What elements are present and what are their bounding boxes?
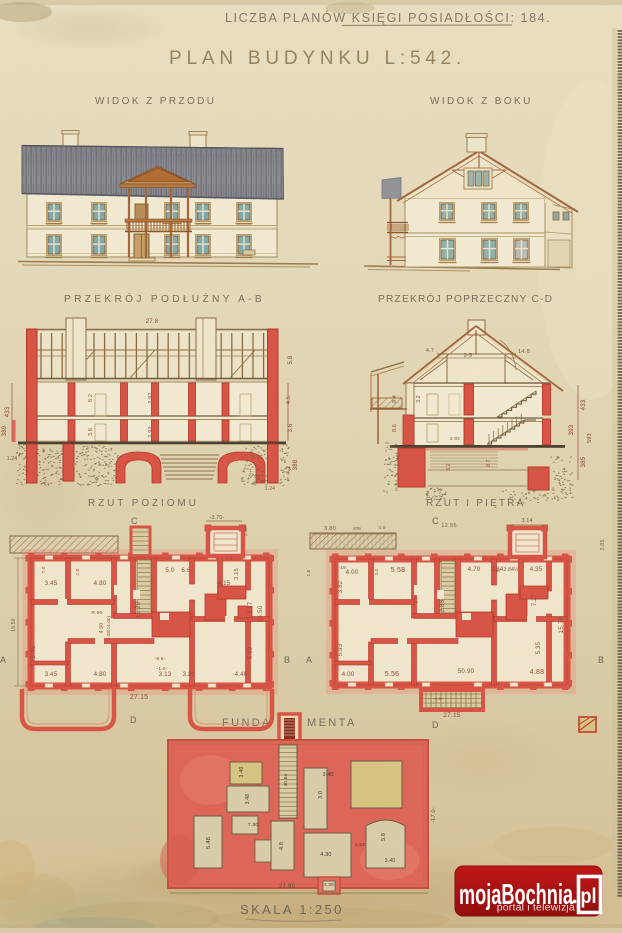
svg-text:pl: pl — [581, 885, 597, 908]
svg-text:portal i telewizja: portal i telewizja — [497, 902, 575, 914]
